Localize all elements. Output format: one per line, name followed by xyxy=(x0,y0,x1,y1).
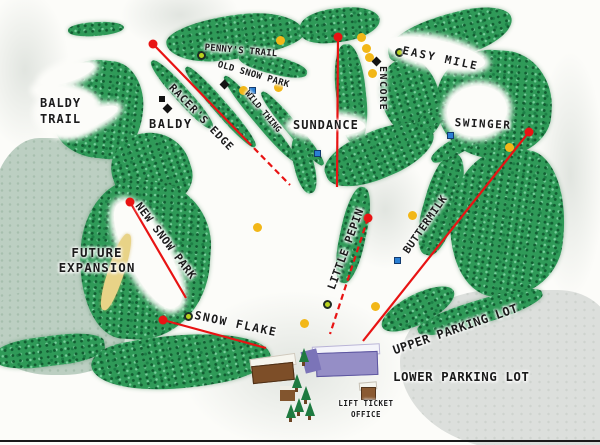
terrain-feature-marker-yellow xyxy=(253,223,262,232)
label-baldy: BALDY xyxy=(149,117,193,131)
label-future-expansion: FUTURE EXPANSION xyxy=(55,245,139,275)
easiest-trail-marker xyxy=(184,312,193,321)
easiest-trail-marker xyxy=(323,300,332,309)
lift-line-sundance-lift xyxy=(337,37,338,187)
intermediate-trail-marker xyxy=(447,132,454,139)
lift-terminal-dot-sundance-lift xyxy=(334,33,343,42)
intermediate-trail-marker xyxy=(394,257,401,264)
lift-terminal-dot-new-snow-park-lift xyxy=(126,198,135,207)
label-baldy-trail: BALDY TRAIL xyxy=(40,95,81,127)
terrain-feature-marker-yellow xyxy=(276,36,285,45)
terrain-feature-marker-yellow xyxy=(300,319,309,328)
terrain-feature-marker-yellow xyxy=(371,302,380,311)
lift-terminal-dot-swinger-lift xyxy=(525,128,534,137)
map-bottom-border xyxy=(0,440,600,442)
label-lift-ticket-office: LIFT TICKET OFFICE xyxy=(335,398,397,421)
terrain-feature-marker-yellow xyxy=(357,33,366,42)
lift-terminal-dot-snow-flake-lift xyxy=(159,316,168,325)
intermediate-trail-marker xyxy=(314,150,321,157)
terrain-feature-marker-yellow xyxy=(362,44,371,53)
expert-trail-marker-square xyxy=(159,96,165,102)
label-sundance: SUNDANCE xyxy=(293,118,359,132)
lift-line-racers-edge-lift xyxy=(247,141,290,185)
terrain-feature-marker-yellow xyxy=(505,143,514,152)
ski-trail-map: BALDY TRAIL BALDY PENNY'S TRAIL OLD SNOW… xyxy=(0,0,600,445)
label-encore: ENCORE xyxy=(376,66,388,111)
lift-terminal-dot-racers-edge-lift xyxy=(149,40,158,49)
terrain-feature-marker-yellow xyxy=(408,211,417,220)
label-lower-parking-lot: LOWER PARKING LOT xyxy=(393,369,529,384)
